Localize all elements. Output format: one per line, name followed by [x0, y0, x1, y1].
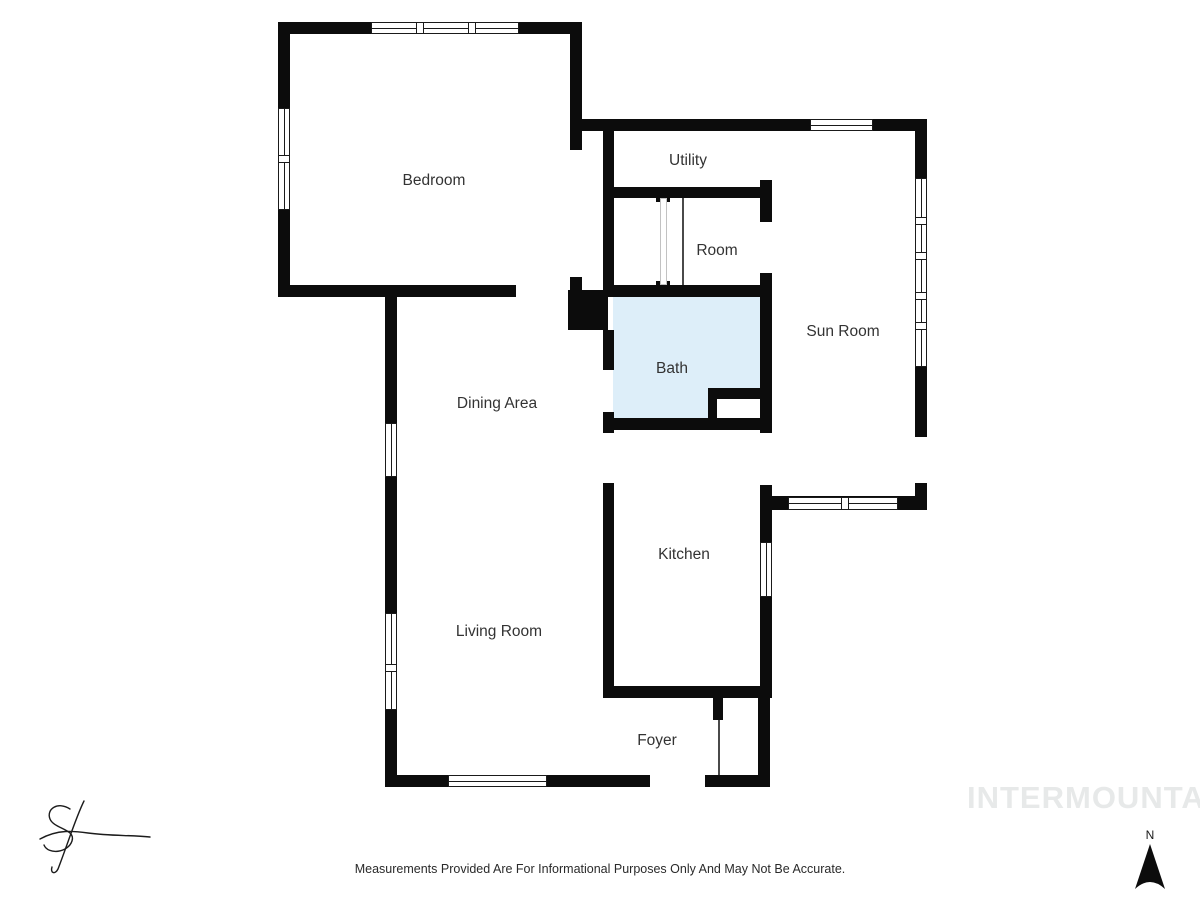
wall: [385, 285, 397, 787]
window: [371, 22, 519, 34]
wall: [603, 330, 614, 370]
window-divider: [916, 252, 926, 260]
room-label-dining-area: Dining Area: [457, 395, 537, 413]
window-divider: [841, 498, 849, 509]
room-label-sun-room: Sun Room: [806, 323, 879, 341]
room-label-room: Room: [696, 242, 737, 260]
wall: [603, 483, 614, 698]
disclaimer-text: Measurements Provided Are For Informatio…: [0, 862, 1200, 876]
bath-closet-niche: [717, 399, 760, 418]
window-divider: [916, 292, 926, 300]
window-pane-line: [921, 179, 922, 366]
window-pane-line: [391, 424, 392, 476]
window-divider: [279, 155, 289, 163]
wall: [582, 119, 927, 131]
wall: [603, 686, 772, 698]
door-line: [718, 720, 720, 775]
window-divider: [386, 664, 396, 672]
room-label-living-room: Living Room: [456, 623, 542, 641]
north-compass: N: [1128, 828, 1172, 890]
room-label-kitchen: Kitchen: [658, 546, 710, 564]
wall: [758, 698, 770, 787]
wall: [603, 131, 614, 297]
window: [915, 178, 927, 367]
wall: [607, 285, 772, 297]
wall: [760, 273, 772, 433]
wall: [708, 399, 717, 430]
window-pane-line: [766, 543, 767, 596]
room-label-foyer: Foyer: [637, 732, 677, 750]
wall-chimney-block: [568, 290, 608, 330]
wall: [708, 388, 762, 399]
window: [385, 423, 397, 477]
wall: [570, 22, 582, 150]
floor-plan-image: Bedroom Utility Room Sun Room Bath Dinin…: [0, 0, 1200, 900]
wall: [603, 418, 772, 430]
window-divider: [468, 23, 476, 33]
window: [448, 775, 547, 787]
window-pane-line: [372, 28, 518, 29]
door-line: [682, 198, 684, 285]
window-divider: [916, 322, 926, 330]
window-pane-line: [811, 125, 872, 126]
north-label: N: [1128, 828, 1172, 842]
wall: [278, 285, 516, 297]
room-label-bath: Bath: [656, 360, 688, 378]
window: [385, 613, 397, 710]
window-divider: [416, 23, 424, 33]
wall: [603, 187, 772, 198]
window: [278, 108, 290, 210]
wall: [713, 698, 723, 720]
watermark-text: INTERMOUNTAIN: [967, 780, 1200, 816]
room-label-bedroom: Bedroom: [403, 172, 466, 190]
door-leaf: [660, 198, 667, 285]
window: [810, 119, 873, 131]
room-label-utility: Utility: [669, 152, 707, 170]
window-divider: [916, 217, 926, 225]
window-pane-line: [449, 781, 546, 782]
window-pane-line: [391, 614, 392, 709]
window: [788, 497, 898, 510]
window: [760, 542, 772, 597]
wall: [760, 180, 772, 222]
